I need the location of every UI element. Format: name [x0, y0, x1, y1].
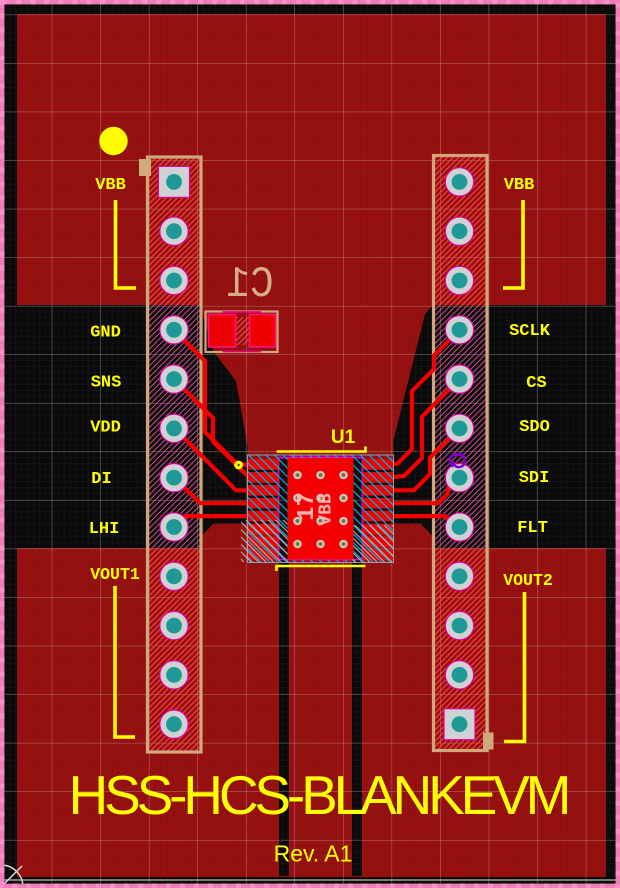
svg-text:SDO: SDO — [519, 418, 550, 437]
svg-text:FLT: FLT — [517, 519, 548, 538]
svg-text:VBB: VBB — [95, 176, 126, 195]
svg-text:VDD: VDD — [90, 419, 121, 438]
svg-text:Rev. A1: Rev. A1 — [274, 841, 353, 867]
svg-text:LHI: LHI — [89, 520, 120, 539]
svg-text:VBB: VBB — [317, 493, 337, 526]
svg-text:VOUT2: VOUT2 — [503, 571, 553, 590]
svg-text:HSS-HCS-BLANKEVM: HSS-HCS-BLANKEVM — [69, 764, 572, 826]
svg-text:SNS: SNS — [91, 374, 122, 393]
svg-text:CS: CS — [526, 374, 546, 393]
svg-text:VBB: VBB — [504, 176, 535, 195]
svg-text:VOUT1: VOUT1 — [90, 565, 140, 584]
svg-text:SCLK: SCLK — [509, 322, 551, 341]
svg-text:DI: DI — [91, 470, 111, 489]
svg-text:SDI: SDI — [519, 469, 550, 488]
svg-text:U1: U1 — [331, 427, 356, 448]
svg-text:GND: GND — [90, 324, 121, 343]
svg-text:C1: C1 — [226, 259, 274, 309]
